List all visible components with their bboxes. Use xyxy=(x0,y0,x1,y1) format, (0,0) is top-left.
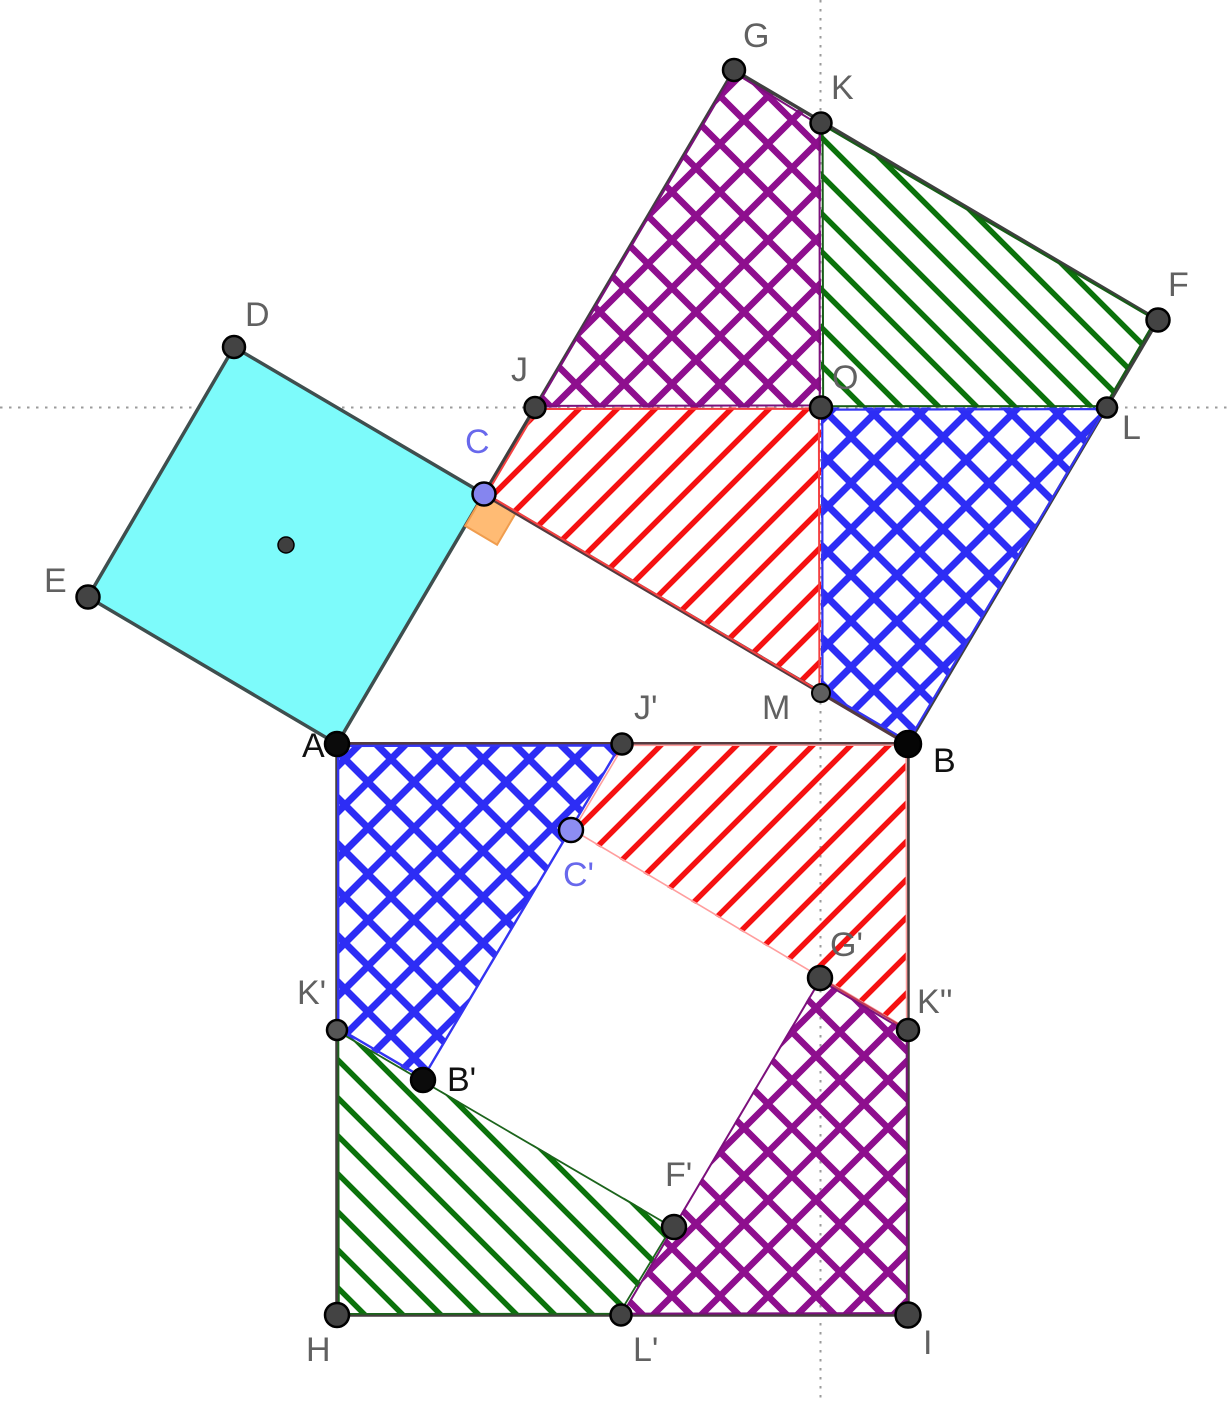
label-O: O xyxy=(832,359,858,397)
label-G-prime: G' xyxy=(830,926,863,964)
point-I[interactable] xyxy=(896,1303,921,1328)
label-M: M xyxy=(762,689,790,727)
point-G-prime[interactable] xyxy=(808,966,832,990)
label-K-prime: K' xyxy=(297,974,326,1012)
point-L[interactable] xyxy=(1097,398,1117,418)
label-B: B xyxy=(933,742,956,780)
pythagorean-dissection-figure: GKFDJOLCEMABJ'C'G'K'K''B'F'HL'I xyxy=(0,0,1227,1401)
point-G[interactable] xyxy=(723,59,745,81)
point-K-double-prime[interactable] xyxy=(897,1019,919,1041)
piece-upper-purple[interactable] xyxy=(535,70,821,408)
point-B-prime[interactable] xyxy=(411,1068,435,1092)
point-H[interactable] xyxy=(325,1303,349,1327)
point-E[interactable] xyxy=(77,586,100,609)
label-A: A xyxy=(302,727,325,765)
point-C-prime[interactable] xyxy=(559,818,583,842)
point-B[interactable] xyxy=(895,731,921,757)
point-L-prime[interactable] xyxy=(611,1305,632,1326)
point-F-prime[interactable] xyxy=(662,1215,686,1239)
point-center-ACDE[interactable] xyxy=(278,537,294,553)
point-A[interactable] xyxy=(325,732,349,756)
label-F: F xyxy=(1168,266,1189,304)
label-J-prime: J' xyxy=(634,689,658,727)
label-H: H xyxy=(306,1331,331,1369)
label-I: I xyxy=(923,1324,932,1362)
label-F-prime: F' xyxy=(665,1156,692,1194)
point-F[interactable] xyxy=(1147,309,1170,332)
piece-lower-green[interactable] xyxy=(337,1030,674,1315)
label-G: G xyxy=(743,17,769,55)
piece-lower-blue[interactable] xyxy=(337,744,622,1080)
point-K-prime[interactable] xyxy=(327,1020,347,1040)
label-J: J xyxy=(511,351,528,389)
label-C: C xyxy=(465,423,490,461)
point-C[interactable] xyxy=(473,483,496,506)
piece-upper-blue[interactable] xyxy=(821,408,1107,745)
piece-upper-red[interactable] xyxy=(484,408,821,694)
piece-upper-green[interactable] xyxy=(821,123,1158,408)
piece-lower-purple[interactable] xyxy=(621,978,908,1315)
point-J-prime[interactable] xyxy=(612,734,633,755)
point-J[interactable] xyxy=(525,397,546,418)
label-D: D xyxy=(245,296,270,334)
label-L-prime: L' xyxy=(633,1331,658,1369)
geometry-canvas: GKFDJOLCEMABJ'C'G'K'K''B'F'HL'I xyxy=(0,0,1227,1401)
label-L: L xyxy=(1122,409,1141,447)
point-K[interactable] xyxy=(811,113,832,134)
point-D[interactable] xyxy=(223,336,245,358)
label-K: K xyxy=(831,69,854,107)
point-O[interactable] xyxy=(810,397,832,419)
point-M[interactable] xyxy=(812,684,830,702)
piece-lower-red[interactable] xyxy=(571,744,908,1030)
label-C-prime: C' xyxy=(563,856,594,894)
label-B-prime: B' xyxy=(447,1061,476,1099)
label-E: E xyxy=(44,562,67,600)
label-K-double-prime: K'' xyxy=(917,983,953,1021)
